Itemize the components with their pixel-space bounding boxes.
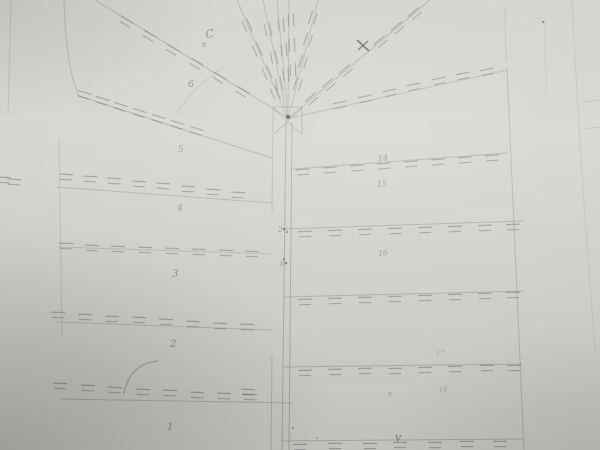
double-dash-mark [293,444,307,449]
double-dash-mark [132,181,146,187]
double-dash-mark [231,192,245,198]
double-dash-mark [408,8,422,21]
survey-dot [316,437,318,439]
handwritten-label-8: 8 [280,260,285,268]
double-dash-mark [290,63,296,77]
double-dash-mark [458,157,472,163]
double-dash-mark [388,296,402,301]
pencil-line [281,439,523,441]
double-dash-mark [170,120,185,129]
double-dash-mark [480,68,495,76]
pencil-line [545,20,546,100]
pencil-line [284,291,523,297]
double-dash-mark [151,114,166,123]
handwritten-label-18: 18 [438,385,448,394]
pencil-line [293,153,507,169]
double-dash-mark [206,189,220,195]
parcel-number-labels: Cx6543211415161718xv28 [167,27,449,444]
double-dash-mark [186,321,200,327]
pencil-line [583,100,600,102]
pencil-line [56,322,272,330]
double-dash-mark [289,38,295,52]
double-dash-mark [7,179,21,185]
pencil-line [282,122,286,450]
double-dash-mark [298,231,312,237]
double-dash-mark [190,392,204,398]
double-dash-mark [485,155,499,161]
double-dash-mark [51,312,65,318]
double-dash-mark [0,177,11,183]
survey-dot [286,115,290,119]
double-dash-mark [328,230,342,236]
handwritten-label-x: x [388,390,392,398]
handwritten-label-4: 4 [176,204,183,214]
double-dash-mark [95,96,110,105]
double-dash-mark [119,16,134,28]
double-dash-mark [159,319,173,325]
handwritten-label-C: C [205,27,216,41]
double-dash-mark [81,385,95,391]
pencil-curve [176,66,225,114]
double-dash-mark [478,225,492,231]
double-dash-mark [358,368,372,373]
double-dash-mark [189,126,204,135]
pencil-line [8,0,11,115]
double-dash-mark [448,294,462,299]
construction-curves [64,0,595,394]
handwritten-label-17: 17 [435,349,445,358]
double-dash-mark [235,86,250,98]
double-dash-mark [507,365,521,370]
double-dash-mark [418,295,432,300]
handwritten-label-15: 15 [376,179,387,189]
double-dash-mark [460,441,474,446]
survey-dot [542,21,544,23]
pencil-line [271,355,272,450]
double-dash-mark [298,370,312,375]
double-dash-mark [363,443,377,448]
handwritten-label-16: 16 [377,248,388,258]
survey-dot [285,262,288,265]
double-dash-mark [428,442,442,447]
double-dash-mark [448,366,462,371]
double-dash-mark [478,293,492,298]
handwritten-label-14: 14 [377,153,388,163]
double-dash-mark [388,368,402,373]
survey-dot [292,427,294,429]
pencil-curve [64,0,79,96]
hedge-tick-marks [0,8,521,450]
double-dash-mark [431,159,445,165]
pencil-line [505,8,506,62]
pencil-line [60,399,293,403]
double-dash-mark [418,227,432,233]
double-dash-mark [323,167,337,173]
double-dash-mark [506,224,520,230]
double-dash-mark [189,58,204,70]
handwritten-label-x: x [202,40,207,49]
pencil-line [290,70,507,118]
pencil-line [59,140,62,336]
double-dash-mark [404,161,418,167]
double-dash-mark [156,183,170,189]
double-dash-mark [377,163,391,169]
double-dash-mark [132,317,146,323]
double-dash-mark [358,95,373,103]
pencil-curve [572,0,595,350]
double-dash-mark [350,165,364,171]
handwritten-label-2: 2 [277,226,283,234]
double-dash-mark [383,89,398,97]
double-dash-mark [358,229,372,235]
pencil-line [272,107,273,212]
double-dash-mark [53,383,67,389]
double-dash-mark [136,389,150,395]
survey-point-dots [283,21,545,439]
double-dash-mark [328,443,342,448]
double-dash-mark [506,292,520,297]
handwritten-label-2: 2 [169,339,176,350]
pencil-line [585,127,600,129]
handwritten-label-v: v [395,431,402,444]
survey-dot [286,231,288,233]
double-dash-mark [163,390,177,396]
double-dash-mark [298,299,312,304]
pencil-line [237,0,287,117]
double-dash-mark [358,297,372,302]
double-dash-mark [78,314,92,320]
double-dash-mark [181,186,195,192]
double-dash-mark [448,226,462,232]
handwritten-label-5: 5 [178,145,184,155]
double-dash-mark [217,393,231,399]
survey-dot [283,228,286,231]
double-dash-mark [107,178,121,184]
double-dash-mark [105,316,119,322]
double-dash-mark [493,441,507,446]
double-dash-mark [480,365,494,370]
double-dash-mark [391,22,405,35]
double-dash-mark [328,298,342,303]
double-dash-mark [108,387,122,393]
double-dash-mark [142,30,157,42]
double-dash-mark [418,367,432,372]
double-dash-mark [388,228,402,234]
double-dash-mark [132,108,147,117]
handwritten-label-3: 3 [172,269,178,280]
handwritten-label-6: 6 [188,80,194,90]
pencil-line [289,122,292,450]
double-dash-mark [83,176,97,182]
pencil-line [507,68,524,450]
double-dash-mark [296,169,310,175]
double-dash-mark [328,369,342,374]
handwritten-label-1: 1 [167,422,173,433]
double-dash-mark [165,44,180,56]
pencil-line [57,187,272,203]
sketch-svg: Cx6543211415161718xv28 [0,0,600,450]
photo-of-survey-sketch: Cx6543211415161718xv28 [0,0,600,450]
double-dash-mark [59,174,73,180]
